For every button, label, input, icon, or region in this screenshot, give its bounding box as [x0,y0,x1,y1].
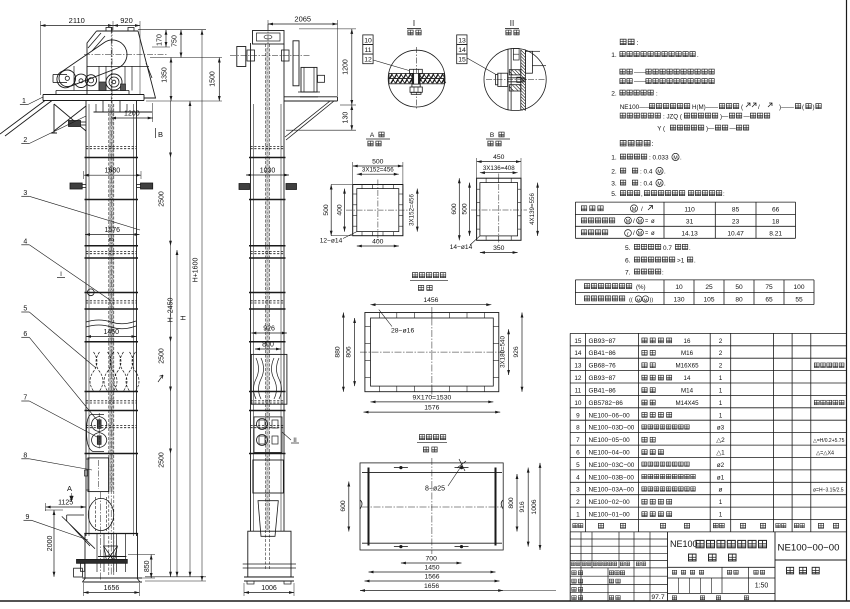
svg-text:H−2450: H−2450 [168,298,175,323]
svg-text:6: 6 [23,331,27,338]
svg-text:926: 926 [263,326,275,333]
svg-text:ø=H−3.15/2.5: ø=H−3.15/2.5 [813,488,844,494]
svg-text:600: 600 [451,203,458,215]
svg-text:2500: 2500 [159,348,166,364]
svg-text:ø2: ø2 [717,462,725,469]
svg-text:3.: 3. [611,181,617,188]
svg-text:M: M [657,182,661,188]
svg-text:1125: 1125 [58,500,73,507]
svg-text:6.: 6. [625,257,631,264]
svg-text:450: 450 [493,154,505,161]
svg-text:13: 13 [574,363,582,370]
svg-text:1.: 1. [611,52,617,59]
svg-text:700: 700 [426,556,438,563]
svg-text:/: / [641,206,643,213]
svg-text:——: —— [634,70,646,76]
svg-text:5.: 5. [611,191,617,198]
svg-text:1566: 1566 [424,574,439,581]
svg-text:4X139=556: 4X139=556 [529,193,536,225]
svg-text:II: II [510,19,514,28]
svg-text:)—: )— [706,126,715,133]
svg-text:△2: △2 [716,437,725,444]
svg-text:14: 14 [458,47,466,54]
svg-text:11: 11 [364,47,371,54]
svg-text:NE100−03D−00: NE100−03D−00 [589,425,635,432]
svg-text:5.: 5. [625,245,631,252]
svg-text:0.7: 0.7 [663,245,672,252]
svg-text:ø1: ø1 [717,474,725,481]
svg-text:18: 18 [772,218,780,225]
svg-text:ø: ø [719,487,723,494]
svg-text:△=H/0.2+5.75: △=H/0.2+5.75 [813,438,845,444]
svg-text:GB93−87: GB93−87 [589,375,617,382]
svg-text:——: —— [634,80,646,86]
svg-text:1: 1 [576,512,580,519]
svg-text:1680: 1680 [105,168,121,175]
svg-text:): ) [813,104,815,111]
svg-text:I: I [60,271,62,278]
svg-text:>1: >1 [677,257,685,264]
svg-text:GB93−87: GB93−87 [589,338,617,345]
svg-text:2000: 2000 [47,536,54,552]
svg-text:400: 400 [336,204,343,216]
svg-text:: 0.033: : 0.033 [649,155,669,162]
svg-text:1006: 1006 [261,585,277,592]
svg-text:3X180=540: 3X180=540 [500,336,507,368]
svg-text:I: I [413,19,415,28]
svg-text:M: M [673,156,677,162]
svg-text:2: 2 [719,363,723,370]
svg-text:1: 1 [719,387,723,394]
svg-text:1450: 1450 [424,565,439,572]
svg-text:(%): (%) [636,284,646,291]
svg-text:M: M [626,219,630,225]
svg-text:800: 800 [508,497,515,509]
svg-text:H: H [181,315,188,320]
svg-text:2500: 2500 [159,452,166,468]
svg-text:15: 15 [458,57,466,64]
svg-text:B: B [490,132,494,139]
svg-text:NE100−05−00: NE100−05−00 [589,437,631,444]
svg-text:2.: 2. [611,169,617,176]
svg-text:—: — [744,114,751,121]
svg-text::: : [637,40,639,47]
svg-text:1576: 1576 [424,405,439,412]
svg-text:M: M [638,231,642,237]
svg-text:M: M [644,297,648,303]
svg-text:7: 7 [23,395,27,402]
svg-text:11: 11 [575,387,582,394]
svg-text:1: 1 [719,499,723,506]
svg-text:1: 1 [719,375,723,382]
svg-text:2065: 2065 [294,15,311,24]
svg-text:1200: 1200 [124,111,140,118]
svg-text:130: 130 [673,297,684,304]
svg-text:1200: 1200 [342,59,349,75]
svg-text:1350: 1350 [162,67,169,83]
svg-text:2: 2 [23,137,27,144]
svg-text:M16X65: M16X65 [675,363,699,370]
svg-text:9: 9 [576,412,580,419]
svg-text:170: 170 [157,34,164,46]
svg-text:3: 3 [23,190,27,197]
svg-text:=: = [645,219,648,225]
svg-text:2500: 2500 [159,191,166,207]
svg-text:GB41−86: GB41−86 [589,387,617,394]
svg-text:NE100−04−00: NE100−04−00 [589,449,631,456]
svg-text:4: 4 [576,474,580,481]
svg-text:2.: 2. [611,91,617,98]
svg-text:H(M)——: H(M)—— [692,104,719,111]
svg-text:8−ø25: 8−ø25 [425,486,445,493]
svg-text:)—: )— [720,114,729,121]
svg-text:M16: M16 [681,350,694,357]
svg-text:A: A [67,484,72,493]
svg-text:880: 880 [334,346,341,358]
svg-text:7: 7 [576,437,580,444]
svg-text:3X136=408: 3X136=408 [483,165,515,172]
svg-text:: 0.4: : 0.4 [640,169,653,176]
svg-text:75: 75 [765,284,773,291]
svg-text:△=△X4: △=△X4 [816,450,834,456]
svg-text:97.7: 97.7 [651,594,664,601]
svg-text:NE100——: NE100—— [620,104,653,111]
svg-text:8.21: 8.21 [769,230,782,237]
svg-text:GB5782−86: GB5782−86 [589,400,624,407]
svg-text:M: M [638,219,642,225]
svg-text:/: / [633,230,635,237]
svg-text:M: M [657,170,661,176]
svg-text:1656: 1656 [424,583,439,590]
svg-text:750: 750 [172,35,179,47]
svg-text:1500: 1500 [210,71,217,87]
svg-text:Y (: Y ( [657,126,666,133]
svg-text:NE100−03B−00: NE100−03B−00 [589,474,635,481]
svg-text:66: 66 [772,206,780,213]
svg-text:10: 10 [364,37,372,44]
svg-text:850: 850 [144,560,151,572]
svg-text:500: 500 [372,159,384,166]
svg-text:12−ø14: 12−ø14 [320,237,343,244]
svg-text:28−ø16: 28−ø16 [391,328,414,335]
svg-text:31: 31 [686,218,694,225]
svg-text:5: 5 [23,306,27,313]
svg-text:80: 80 [735,297,743,304]
svg-text:NE100−06−00: NE100−06−00 [589,412,631,419]
svg-text:10: 10 [574,400,582,407]
svg-text:926: 926 [513,346,520,358]
svg-text:5: 5 [576,462,580,469]
svg-text:8: 8 [576,425,580,432]
svg-text:H+1600: H+1600 [193,258,200,283]
svg-text:4: 4 [23,238,27,245]
svg-text:1: 1 [22,98,26,105]
svg-text:50: 50 [735,284,743,291]
svg-text:14: 14 [684,375,691,382]
svg-text:)——: )—— [779,104,795,111]
svg-text:10.47: 10.47 [727,230,744,237]
svg-text:GB41−86: GB41−86 [589,350,617,357]
svg-text:110: 110 [684,206,695,213]
svg-text:1:50: 1:50 [755,583,769,590]
svg-text:1.: 1. [611,155,617,162]
svg-text:A: A [370,132,375,139]
svg-text:916: 916 [519,501,526,513]
svg-text:1456: 1456 [423,297,438,304]
svg-text:/: / [633,218,635,225]
svg-text:2110: 2110 [69,16,85,25]
svg-text:23: 23 [732,218,740,225]
svg-text:25: 25 [705,284,713,291]
svg-text:((: (( [629,297,633,303]
svg-text:M: M [632,207,636,213]
svg-text:: JZQ (: : JZQ ( [663,114,683,121]
svg-text:105: 105 [703,297,714,304]
svg-text:55: 55 [795,297,803,304]
svg-text:△1: △1 [716,449,725,456]
svg-text:1656: 1656 [104,585,120,592]
svg-text:12: 12 [364,57,372,64]
svg-text:GB68−76: GB68−76 [589,363,617,370]
svg-text:M: M [637,297,641,303]
svg-text:130: 130 [342,112,349,124]
svg-text:806: 806 [346,346,353,358]
svg-text:600: 600 [340,500,347,512]
svg-text:13: 13 [458,37,466,44]
svg-text:: 0.4: : 0.4 [640,181,653,188]
svg-text:B: B [158,130,163,139]
svg-text:500: 500 [323,204,330,216]
svg-text:NE100: NE100 [670,539,698,549]
svg-text:M14: M14 [681,387,694,394]
svg-text:15: 15 [574,338,582,345]
svg-text:NE100−01−00: NE100−01−00 [589,512,631,519]
svg-text:NE100−00−00: NE100−00−00 [778,543,840,554]
svg-text:ø: ø [651,219,655,225]
svg-text:ø: ø [651,231,655,237]
svg-text::: : [652,141,654,148]
svg-text:NE100−03A−00: NE100−03A−00 [589,487,635,494]
svg-text:3X152=456: 3X152=456 [362,167,394,174]
svg-text:1: 1 [719,400,723,407]
svg-text:1450: 1450 [103,329,119,336]
svg-text:14−ø14: 14−ø14 [450,244,473,251]
svg-text:85: 85 [732,206,740,213]
svg-text:8: 8 [23,452,27,459]
svg-text:14: 14 [574,350,582,357]
svg-text:2: 2 [576,499,580,506]
svg-text:100: 100 [793,284,804,291]
svg-text:6: 6 [576,449,580,456]
svg-text:)): )) [650,297,654,303]
svg-text:16: 16 [684,338,691,345]
svg-text:500: 500 [461,203,468,215]
svg-text:NE100−02−00: NE100−02−00 [589,499,631,506]
svg-text:BJ: BJ [109,237,114,242]
svg-text:2: 2 [719,350,723,357]
svg-text:M14X45: M14X45 [675,400,699,407]
svg-text:NE100−03C−00: NE100−03C−00 [589,462,635,469]
svg-text:/: / [758,104,760,111]
svg-text:2: 2 [719,338,723,345]
svg-text:—: — [730,126,737,133]
svg-text:1030: 1030 [260,168,276,175]
svg-text:65: 65 [765,297,773,304]
svg-text:ø3: ø3 [717,425,725,432]
svg-text:7.: 7. [625,269,631,276]
svg-text:350: 350 [493,245,505,252]
svg-text:=: = [645,231,648,237]
svg-text:1: 1 [719,512,723,519]
svg-text:12: 12 [574,375,582,382]
svg-text:3X152=456: 3X152=456 [409,194,416,226]
svg-text:800: 800 [262,342,274,349]
svg-text:1: 1 [719,412,723,419]
svg-text:400: 400 [372,239,384,246]
svg-text:920: 920 [120,16,133,25]
svg-text:1006: 1006 [531,499,538,514]
svg-text:9: 9 [26,514,30,521]
svg-text:10: 10 [675,284,683,291]
svg-text:3: 3 [576,487,580,494]
svg-text:14.13: 14.13 [681,230,698,237]
svg-text:1576: 1576 [104,227,120,234]
svg-text:9X170=1530: 9X170=1530 [413,394,452,401]
